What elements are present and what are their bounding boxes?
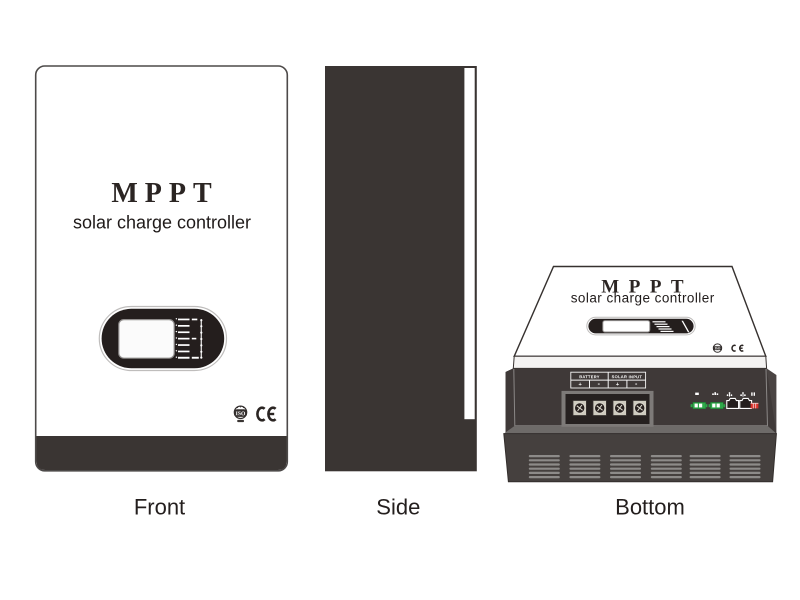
svg-text:MPPT: MPPT (111, 178, 218, 209)
svg-text:BATTERY: BATTERY (579, 374, 600, 379)
svg-text:ISO: ISO (715, 346, 721, 350)
svg-text:solar charge controller: solar charge controller (571, 290, 715, 305)
svg-text:Side: Side (376, 495, 420, 520)
svg-text:SOLAR INPUT: SOLAR INPUT (612, 374, 643, 379)
svg-text:Bottom: Bottom (615, 495, 685, 520)
svg-text:ISO: ISO (236, 411, 246, 417)
svg-text:solar charge controller: solar charge controller (73, 213, 251, 233)
svg-text:Front: Front (134, 495, 185, 520)
